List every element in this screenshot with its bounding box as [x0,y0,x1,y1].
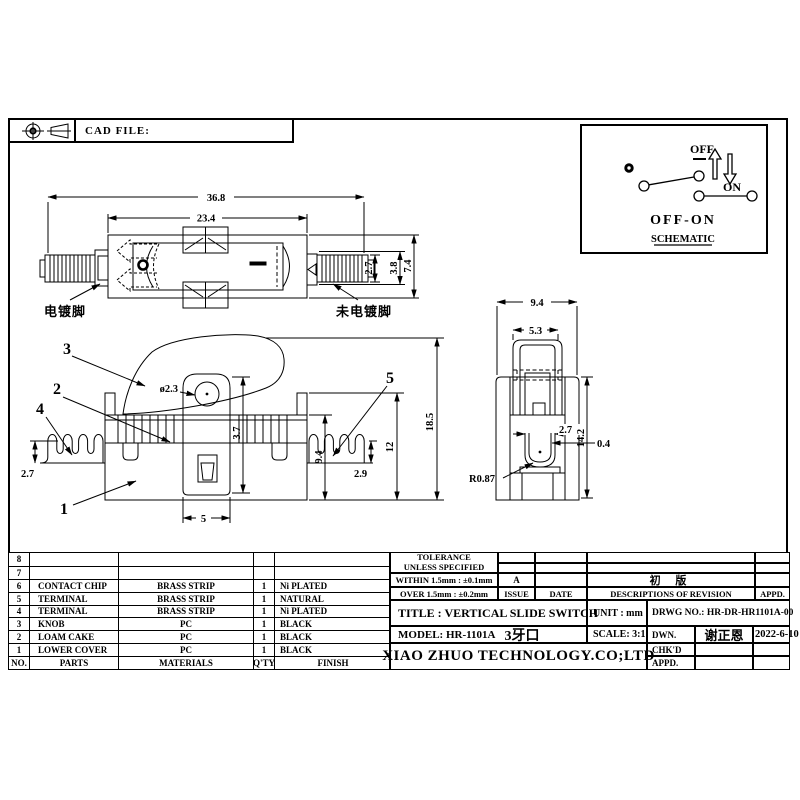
cad-file-label: CAD FILE: [76,120,292,141]
dim-12: 12 [385,442,396,453]
engineering-drawing-page: CAD FILE: OFF ON OFF-ON SCHEMATIC [0,0,800,800]
dim-2-7-slot: 2.7 [559,425,572,436]
part-no: 8 [9,553,29,566]
revision-issue-value: A [498,573,535,587]
side-view: 9.4 5.3 2.7 0.4 14.2 R0.87 [455,290,640,520]
part-material [118,566,253,579]
dim-18-5: 18.5 [425,413,436,431]
plated-pin-label: 电镀脚 [44,304,86,319]
unit-field: UNIT : mm [587,600,647,626]
appd-label: APPD. [647,656,695,670]
part-no: 2 [9,630,29,643]
balloon-2: 2 [53,381,61,398]
revision-row-appd [755,563,790,573]
revision-appd-value [755,573,790,587]
front-view: ø2.3 3.7 9.4 12 18.5 2.7 2.9 5 3 2 4 5 1 [20,330,450,532]
part-qty: 1 [253,579,274,592]
top-view: 36.8 23.4 2.7 3.8 7.4 电镀脚 未电镀脚 [20,190,430,322]
part-finish: BLACK [274,617,391,630]
part-finish: BLACK [274,630,391,643]
drawing-number: DRWG NO.: HR-DR-HR1101A-00 [647,600,790,626]
col-header-qty: Q'TY [253,656,274,669]
part-name [29,553,118,566]
dim-hole: ø2.3 [160,384,178,395]
unplated-pin-label: 未电镀脚 [335,304,392,319]
revision-row-date [535,563,587,573]
part-finish: Ni PLATED [274,579,391,592]
appd-header: APPD. [755,587,790,600]
part-qty [253,566,274,579]
dim-r0-87: R0.87 [469,474,495,485]
comb-teeth [118,415,287,443]
part-name [29,566,118,579]
part-name: LOWER COVER [29,643,118,656]
left-terminal-hatch [50,255,90,282]
dim-7-4: 7.4 [403,259,414,273]
dim-14-2: 14.2 [576,429,587,447]
drawing-title: TITLE : VERTICAL SLIDE SWITCH [390,600,587,626]
left-wavy-terminal [41,435,103,464]
balloon-4: 4 [36,401,44,418]
dim-3-8: 3.8 [389,261,400,274]
issue-header: ISSUE [498,587,535,600]
part-finish: Ni PLATED [274,605,391,618]
part-no: 7 [9,566,29,579]
schematic-box: OFF ON OFF-ON SCHEMATIC [580,124,768,254]
part-no: 5 [9,592,29,605]
scale-field: SCALE: 3:1 [587,626,647,643]
appd-date [753,656,790,670]
tolerance-within: WITHIN 1.5mm : ±0.1mm [390,573,498,587]
balloon-5: 5 [386,370,394,387]
part-name: TERMINAL [29,605,118,618]
dim-36-8: 36.8 [207,193,225,204]
col-header-no: NO. [9,656,29,669]
part-finish: NATURAL [274,592,391,605]
projection-symbol-icon [10,120,76,141]
dwn-label: DWN. [647,626,695,643]
part-name: LOAM CAKE [29,630,118,643]
on-label: ON [723,180,741,194]
schematic-drawing: OFF ON OFF-ON SCHEMATIC [582,126,766,252]
dim-2-7-left: 2.7 [21,469,34,480]
right-terminal-hatch [322,255,362,282]
chkd-signature [695,643,753,656]
part-qty: 1 [253,605,274,618]
part-no: 1 [9,643,29,656]
part-no: 4 [9,605,29,618]
tolerance-title: TOLERANCEUNLESS SPECIFIED [390,552,498,573]
company-name: XIAO ZHUO TECHNOLOGY.CO;LTD [390,643,647,670]
part-name: TERMINAL [29,592,118,605]
cad-file-bar: CAD FILE: [8,118,294,143]
col-header-materials: MATERIALS [118,656,253,669]
revision-date-value [535,573,587,587]
dim-2-9: 2.9 [354,469,367,480]
balloon-3: 3 [63,341,71,358]
part-name: KNOB [29,617,118,630]
part-qty: 1 [253,617,274,630]
part-qty [253,553,274,566]
col-header-finish: FINISH [274,656,391,669]
common-terminal-icon [626,165,632,171]
date-header: DATE [535,587,587,600]
revision-row-appd [755,552,790,563]
dim-23-4: 23.4 [197,214,216,225]
dim-9-4: 9.4 [314,450,325,464]
chkd-label: CHK'D [647,643,695,656]
schematic-title: SCHEMATIC [651,234,715,245]
part-qty: 1 [253,592,274,605]
part-no: 3 [9,617,29,630]
dim-5-3: 5.3 [529,326,542,337]
part-finish [274,553,391,566]
balloon-1: 1 [60,501,68,518]
revision-desc-value: 初 版 [587,573,755,587]
title-block: TITLE : VERTICAL SLIDE SWITCH UNIT : mm … [390,600,790,670]
revision-row-desc [587,552,755,563]
part-material: PC [118,617,253,630]
schematic-caption: OFF-ON [650,213,716,228]
part-material: PC [118,643,253,656]
part-qty: 1 [253,630,274,643]
col-header-parts: PARTS [29,656,118,669]
dim-5: 5 [201,514,206,525]
appd-signature [695,656,753,670]
part-finish: BLACK [274,643,391,656]
parts-table: 8 7 6 CONTACT CHIP BRASS STRIP 1 Ni PLAT… [8,552,390,670]
part-material: PC [118,630,253,643]
part-material: BRASS STRIP [118,579,253,592]
tolerance-revision-block: TOLERANCEUNLESS SPECIFIED WITHIN 1.5mm :… [390,552,790,600]
dim-2-7: 2.7 [364,261,375,274]
descriptions-header: DESCRIPTIONS OF REVISION [587,587,755,600]
model-field: MODEL: HR-1101A 3牙口 [390,626,587,643]
part-material: BRASS STRIP [118,592,253,605]
tolerance-over: OVER 1.5mm : ±0.2mm [390,587,498,600]
revision-row-issue [498,563,535,573]
chkd-date [753,643,790,656]
off-label: OFF [690,142,714,156]
revision-row-date [535,552,587,563]
part-finish [274,566,391,579]
part-material: BRASS STRIP [118,605,253,618]
part-name: CONTACT CHIP [29,579,118,592]
part-no: 6 [9,579,29,592]
dwn-signature: 谢正恩 [695,626,753,643]
revision-row-issue [498,552,535,563]
part-material [118,553,253,566]
part-qty: 1 [253,643,274,656]
dwn-date: 2022-6-10 [753,626,790,643]
model-note: 3牙口 [504,625,539,645]
dim-9-4-side: 9.4 [530,298,544,309]
dim-0-4: 0.4 [597,439,611,450]
dim-3-7: 3.7 [232,426,243,439]
